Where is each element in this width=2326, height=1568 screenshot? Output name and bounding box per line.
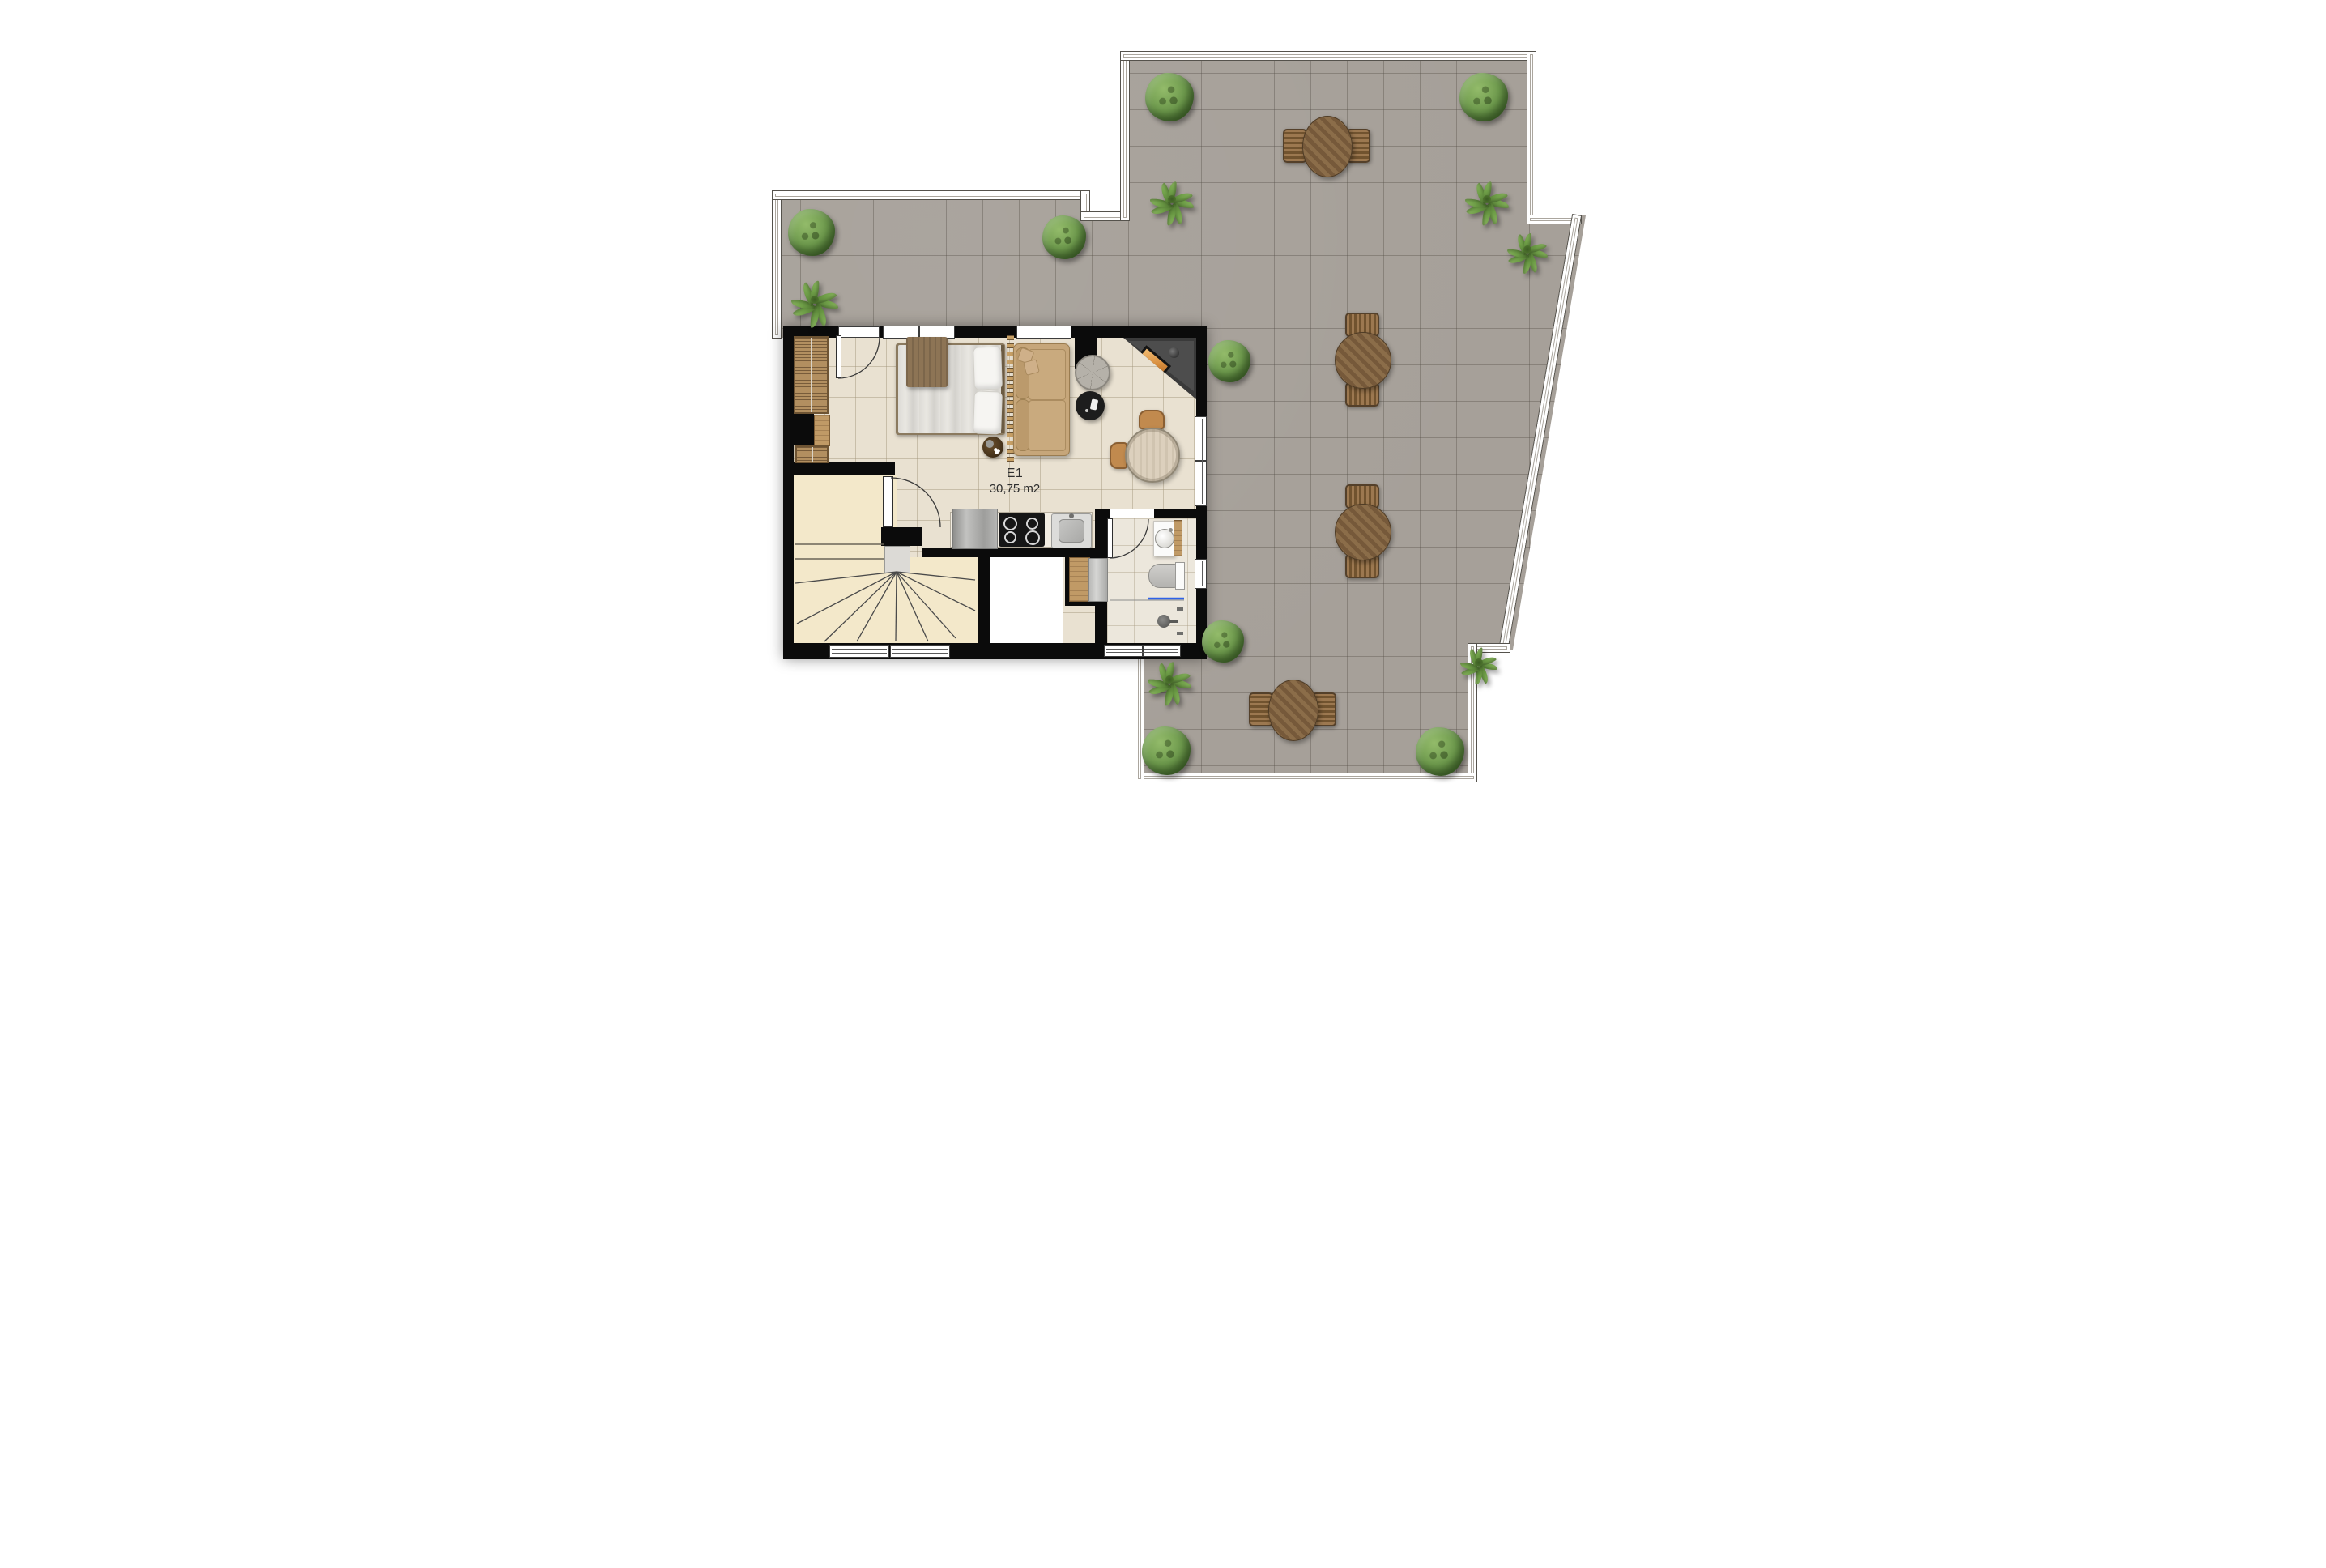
palm-plant	[790, 275, 839, 324]
palm-plant	[1149, 177, 1195, 222]
bush-plant	[1145, 73, 1194, 121]
plants-layer	[581, 0, 1744, 784]
palm-core	[1475, 658, 1483, 667]
bush-plant	[1208, 340, 1250, 382]
bush-plant	[1142, 726, 1191, 775]
palm-plant	[1147, 657, 1192, 702]
palm-core	[1165, 675, 1174, 684]
palm-core	[1483, 195, 1491, 203]
palm-plant	[1464, 177, 1510, 222]
bush-plant	[1202, 620, 1244, 663]
palm-core	[811, 296, 819, 304]
bush-plant	[1416, 727, 1464, 776]
bush-plant	[1459, 73, 1508, 121]
palm-core	[1168, 195, 1176, 203]
palm-core	[1523, 245, 1531, 254]
palm-plant	[1506, 228, 1549, 271]
bush-plant	[788, 209, 835, 256]
bush-plant	[1042, 215, 1086, 259]
palm-plant	[1459, 643, 1498, 682]
floorplan-canvas: E1 30,75 m2	[581, 0, 1744, 784]
